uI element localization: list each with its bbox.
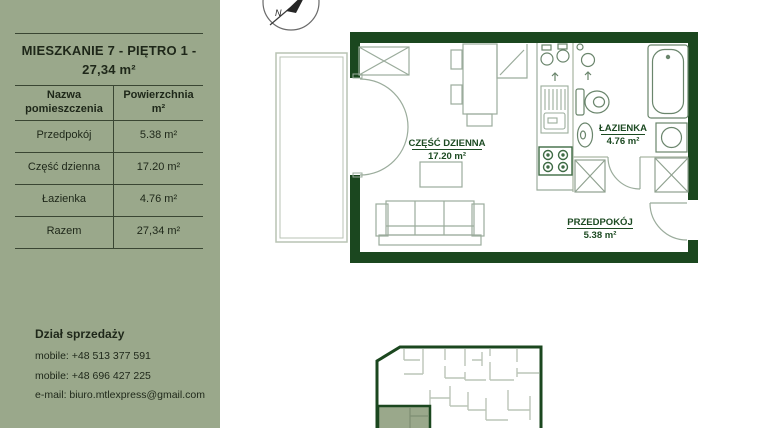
room-area: 4.76 m²: [113, 185, 203, 216]
hallway-label: PRZEDPOKÓJ: [567, 216, 632, 228]
col-header-room-name: Nazwa pomieszczenia: [15, 86, 113, 120]
bathroom-area: 4.76 m²: [607, 136, 640, 147]
room-name: Przedpokój: [15, 121, 113, 152]
washing-machine-icon: [541, 86, 568, 133]
room-name: Łazienka: [15, 185, 113, 216]
washbasin-icon: [656, 123, 687, 152]
bathroom-door: [608, 157, 640, 189]
apartment-title-line2: 27,34 m²: [15, 62, 203, 77]
bathtub-icon: [648, 45, 688, 118]
hall-wardrobe-icons: [575, 158, 688, 192]
apartment-offer-page: MIESZKANIE 7 - PIĘTRO 1 - 27,34 m² Nazwa…: [0, 0, 760, 428]
wardrobe-icon: [359, 47, 409, 75]
coffee-table: [420, 162, 462, 187]
table-row: Część dzienna 17.20 m²: [15, 153, 203, 185]
contact-heading: Dział sprzedaży: [35, 328, 205, 340]
rooms-table: Nazwa pomieszczenia Powierzchnia m² Prze…: [15, 85, 203, 249]
dining-set: [451, 44, 527, 126]
living-room-label: CZĘŚĆ DZIENNA: [408, 137, 485, 149]
room-area: 17.20 m²: [113, 153, 203, 184]
compass-north-icon: N: [263, 0, 319, 30]
entrance-door: [650, 203, 687, 240]
apartment-title-line1: MIESZKANIE 7 - PIĘTRO 1 -: [15, 43, 203, 58]
contact-email: e-mail: biuro.mtlexpress@gmail.com: [35, 390, 205, 401]
balcony-door: [353, 74, 408, 177]
stove-icon: [539, 147, 572, 175]
bath-sink-icon: [577, 44, 595, 80]
sidebar: MIESZKANIE 7 - PIĘTRO 1 - 27,34 m² Nazwa…: [0, 0, 220, 428]
balcony: [276, 53, 347, 242]
mini-floorplan: [377, 347, 541, 428]
table-row: Przedpokój 5.38 m²: [15, 121, 203, 153]
hallway-area: 5.38 m²: [584, 230, 617, 241]
contact-mobile-1: mobile: +48 513 377 591: [35, 351, 205, 362]
kitchen: [537, 43, 573, 190]
table-row-total: Razem 27,34 m²: [15, 217, 203, 249]
toilet-icon: [576, 89, 609, 115]
sofa: [376, 201, 484, 245]
svg-text:N: N: [275, 8, 282, 18]
living-room-area: 17.20 m²: [428, 151, 466, 162]
contact-block: Dział sprzedaży mobile: +48 513 377 591 …: [35, 328, 205, 410]
exterior-walls: [350, 32, 698, 263]
room-name: Część dzienna: [15, 153, 113, 184]
room-area: 27,34 m²: [113, 217, 203, 248]
bathroom-label: ŁAZIENKA: [599, 123, 647, 134]
table-row: Łazienka 4.76 m²: [15, 185, 203, 217]
table-header-row: Nazwa pomieszczenia Powierzchnia m²: [15, 86, 203, 121]
kitchen-sink-icon: [541, 44, 569, 81]
contact-mobile-2: mobile: +48 696 427 225: [35, 371, 205, 382]
floor-plan-area: N: [220, 0, 760, 428]
mini-plan-highlighted-apartment: [378, 406, 430, 428]
apartment-title: MIESZKANIE 7 - PIĘTRO 1 - 27,34 m²: [15, 33, 203, 85]
col-header-area: Powierzchnia m²: [113, 86, 203, 120]
room-name: Razem: [15, 217, 113, 248]
pedestal-sink-icon: [578, 123, 593, 147]
floor-plan-canvas: N: [220, 0, 760, 428]
room-area: 5.38 m²: [113, 121, 203, 152]
